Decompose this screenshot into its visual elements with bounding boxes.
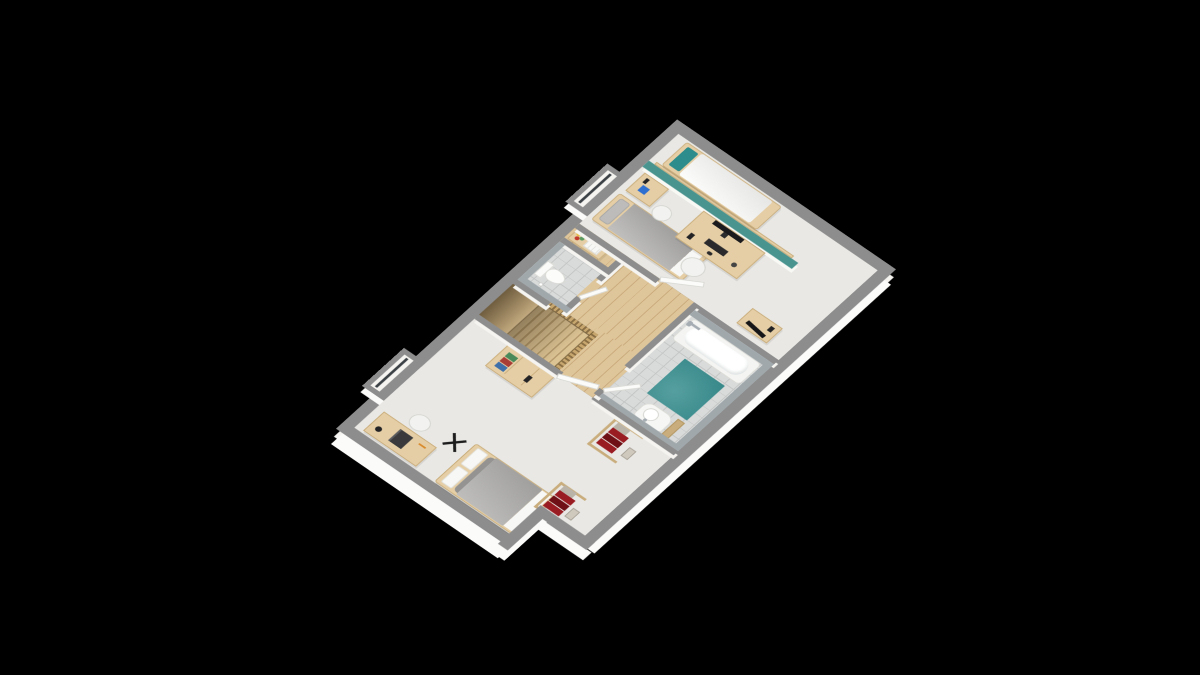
mouse [706,251,713,256]
speaker-item [686,233,695,240]
floor-plan-scene [0,0,1200,675]
blue-toy [637,185,650,195]
black-item [642,178,650,184]
laptop [388,429,413,449]
pencil [418,443,426,449]
black-item [767,326,775,333]
remote-item [523,375,533,383]
flower-leaf [579,236,586,242]
desk-lamp [374,425,384,433]
mug [730,262,738,269]
building-plan [336,119,896,578]
